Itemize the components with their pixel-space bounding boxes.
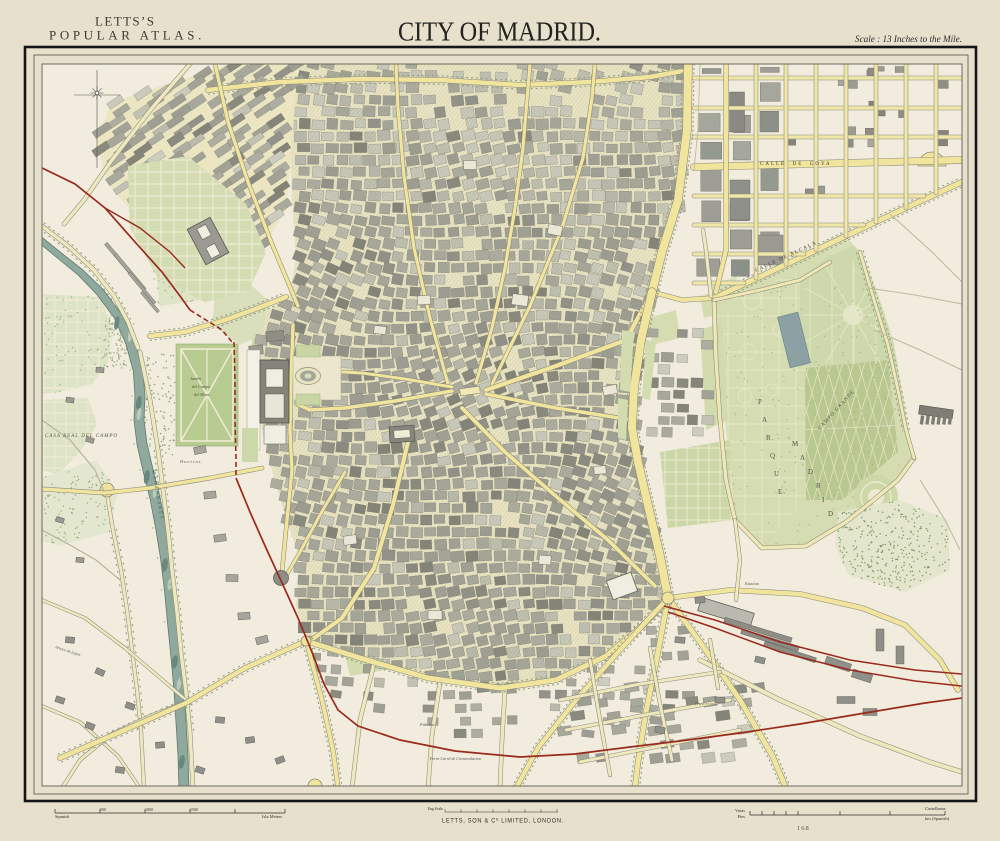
- svg-text:CASA REAL DEL CAMPO: CASA REAL DEL CAMPO: [45, 434, 118, 439]
- svg-text:Scale : 13 Inches to the Mile.: Scale : 13 Inches to the Mile.: [855, 34, 962, 44]
- svg-text:Eng.Scale: Eng.Scale: [428, 807, 444, 811]
- svg-text:LETTS, SON & Cº LIMITED, LONDO: LETTS, SON & Cº LIMITED, LONDON.: [442, 818, 564, 825]
- svg-text:168: 168: [797, 825, 810, 832]
- svg-text:Pies: Pies: [737, 814, 745, 819]
- svg-text:D: D: [828, 510, 833, 518]
- svg-text:Q: Q: [770, 452, 777, 460]
- svg-text:del Moro: del Moro: [194, 392, 209, 397]
- svg-text:CALLE DE GOYA: CALLE DE GOYA: [760, 162, 832, 167]
- svg-text:Castellanas: Castellanas: [925, 806, 946, 811]
- svg-text:A: A: [762, 416, 769, 424]
- svg-text:Huertas: Huertas: [179, 459, 202, 464]
- svg-text:Isla Metres: Isla Metres: [262, 814, 282, 819]
- svg-text:E: E: [778, 488, 784, 496]
- svg-text:M: M: [792, 440, 799, 448]
- svg-text:CITY OF MADRID.: CITY OF MADRID.: [398, 17, 601, 47]
- svg-text:1500: 1500: [190, 807, 198, 812]
- svg-text:POPULAR ATLAS.: POPULAR ATLAS.: [49, 29, 205, 43]
- svg-text:Estacion: Estacion: [744, 581, 759, 586]
- svg-text:Jardin: Jardin: [190, 376, 201, 381]
- svg-text:1000: 1000: [145, 807, 153, 812]
- svg-text:D: D: [808, 468, 813, 476]
- svg-text:km (Spanish): km (Spanish): [925, 816, 950, 821]
- svg-text:LETTS’S: LETTS’S: [95, 14, 156, 29]
- svg-text:Varas: Varas: [735, 808, 745, 813]
- svg-text:Spanish: Spanish: [55, 814, 70, 819]
- svg-text:del Campo: del Campo: [192, 384, 210, 389]
- svg-text:U: U: [774, 470, 781, 478]
- svg-text:Huertas: Huertas: [694, 701, 717, 706]
- svg-text:P: P: [758, 398, 764, 406]
- svg-text:R: R: [816, 482, 821, 490]
- svg-text:Fabrica: Fabrica: [419, 722, 435, 727]
- svg-text:Ferro-Carril de Circunvalacion: Ferro-Carril de Circunvalacion: [429, 756, 481, 761]
- svg-text:A: A: [800, 454, 805, 462]
- svg-text:R: R: [766, 434, 773, 442]
- svg-text:500: 500: [100, 807, 106, 812]
